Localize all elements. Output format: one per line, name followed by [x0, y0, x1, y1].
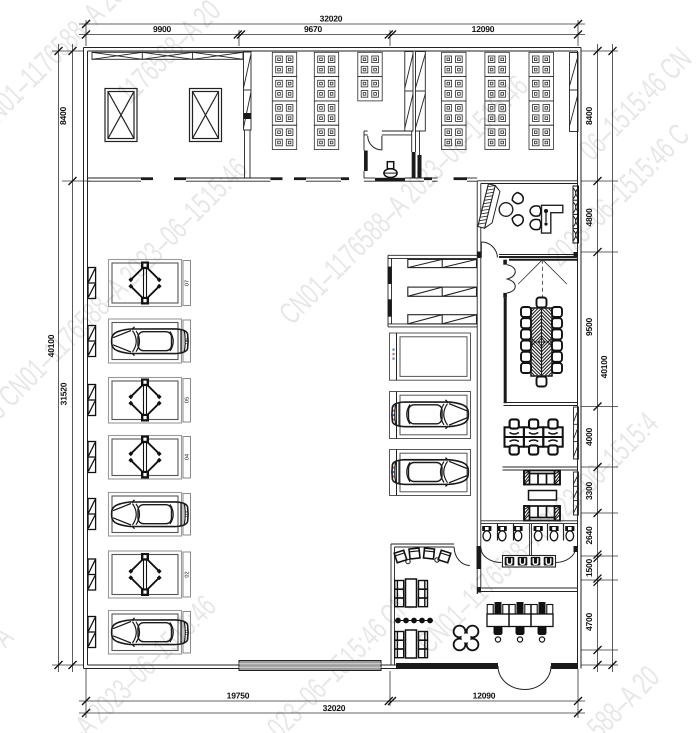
svg-text:9670: 9670 [304, 24, 323, 34]
svg-text:9500: 9500 [584, 317, 594, 336]
svg-text:19750: 19750 [227, 691, 250, 701]
svg-text:32020: 32020 [320, 14, 343, 24]
svg-text:02: 02 [185, 571, 191, 577]
svg-text:2640: 2640 [584, 526, 594, 545]
svg-text:12090: 12090 [473, 691, 496, 701]
svg-text:8400: 8400 [58, 106, 68, 125]
svg-text:4000: 4000 [584, 427, 594, 446]
svg-text:07: 07 [185, 280, 191, 286]
svg-text:4700: 4700 [584, 612, 594, 631]
svg-text:40100: 40100 [599, 355, 609, 378]
svg-text:40100: 40100 [46, 334, 56, 357]
svg-text:12090: 12090 [472, 24, 495, 34]
svg-text:04: 04 [185, 454, 191, 460]
svg-text:1500: 1500 [584, 558, 594, 577]
svg-text:8400: 8400 [584, 106, 594, 125]
svg-text:05: 05 [185, 397, 191, 403]
svg-text:3300: 3300 [584, 481, 594, 500]
svg-text:4800: 4800 [584, 208, 594, 227]
svg-text:31520: 31520 [59, 382, 69, 405]
svg-text:32020: 32020 [323, 703, 346, 713]
svg-text:9900: 9900 [153, 24, 172, 34]
